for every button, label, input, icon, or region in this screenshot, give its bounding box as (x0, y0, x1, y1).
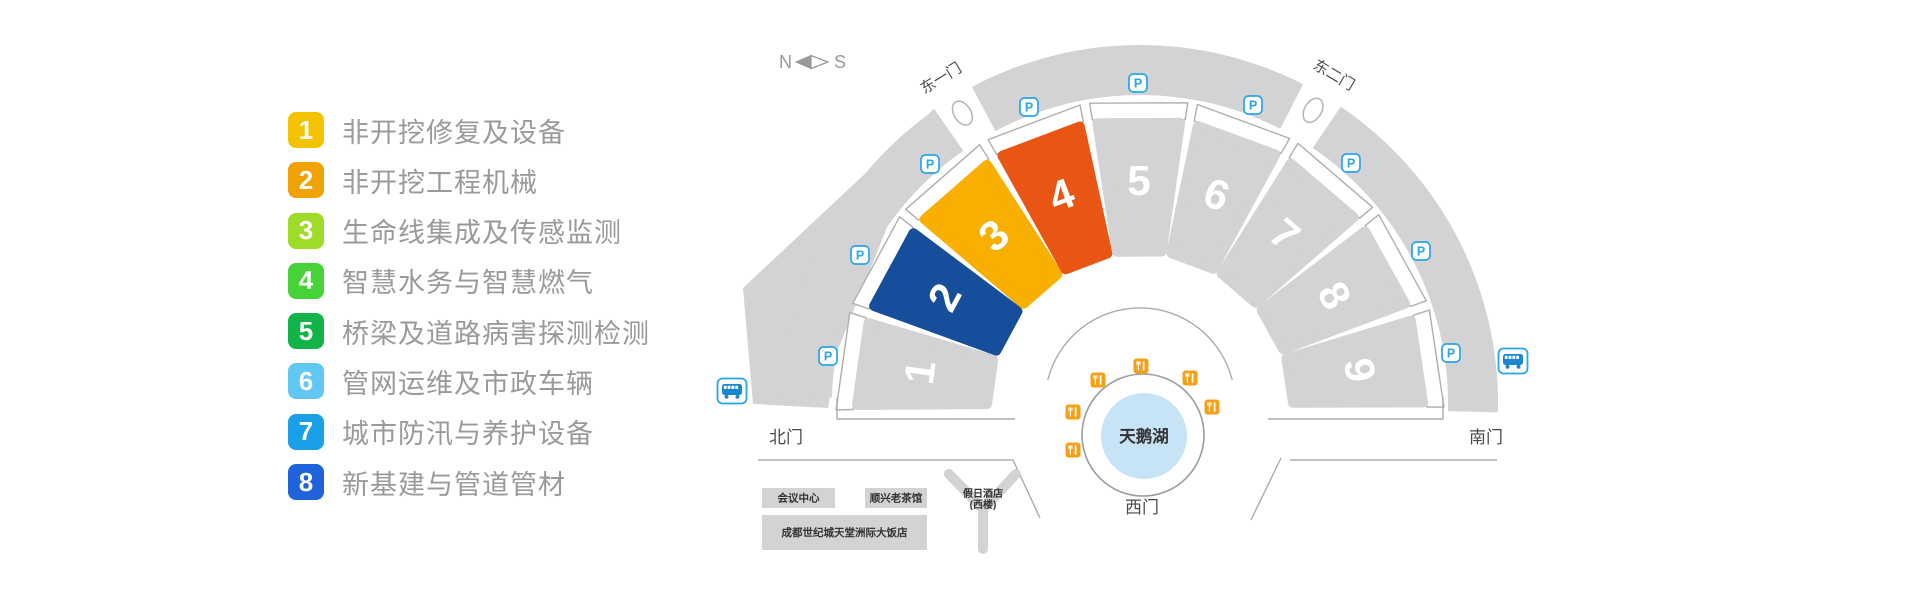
svg-text:P: P (824, 350, 832, 364)
compass-north-label: N (779, 52, 792, 72)
parking-icon: P (921, 155, 939, 173)
svg-text:P: P (1447, 347, 1455, 361)
restaurant-icon (1205, 400, 1220, 415)
compass-east-half (811, 56, 828, 69)
restaurant-icon (1183, 371, 1198, 386)
svg-text:P: P (1249, 99, 1257, 113)
west-road-line-left (1013, 460, 1040, 518)
parking-icon: P (1412, 242, 1430, 260)
svg-text:P: P (1347, 157, 1355, 171)
parking-icon: P (1129, 74, 1147, 92)
west-gate-label: 西门 (1125, 498, 1159, 517)
building-2-label: 成都世纪城天堂洲际大饭店 (782, 526, 908, 539)
compass-west-half (796, 56, 811, 69)
restaurant-icon (1091, 373, 1106, 388)
site-map: 东一门东二门123456789天鹅湖假日酒店(西楼)会议中心顺兴老茶馆成都世纪城… (0, 0, 1920, 598)
svg-text:P: P (1417, 245, 1425, 259)
east-gate-1-opening (948, 98, 976, 129)
north-gate-label: 北门 (769, 428, 803, 447)
restaurant-icon (1066, 405, 1081, 420)
building-1-label: 顺兴老茶馆 (870, 492, 923, 505)
svg-text:P: P (1025, 101, 1033, 115)
holiday-inn-label-line2: (西楼) (970, 498, 997, 511)
west-road-line-right (1251, 458, 1281, 520)
swan-lake-label: 天鹅湖 (1119, 426, 1169, 446)
bus-stop-icon (1499, 349, 1528, 374)
svg-text:P: P (1134, 77, 1142, 91)
compass-south-label: S (834, 52, 846, 72)
parking-icon: P (1020, 98, 1038, 116)
bus-stop-icon (718, 379, 747, 404)
south-gate-label: 南门 (1469, 428, 1503, 447)
parking-icon: P (851, 246, 869, 264)
parking-icon: P (1244, 96, 1262, 114)
east-gate-2-label: 东二门 (1310, 57, 1357, 95)
hotel-drive (949, 474, 1016, 549)
svg-text:P: P (856, 249, 864, 263)
restaurant-icon (1134, 359, 1149, 374)
restaurant-icon (1066, 443, 1081, 458)
compass: NS (779, 52, 846, 72)
site-map-container: 东一门东二门123456789天鹅湖假日酒店(西楼)会议中心顺兴老茶馆成都世纪城… (0, 0, 1920, 598)
parking-icon: P (819, 347, 837, 365)
east-gate-2-opening (1299, 95, 1327, 126)
parking-icon: P (1442, 344, 1460, 362)
holiday-inn-label-line1: 假日酒店 (963, 487, 1003, 500)
hall-5-number: 5 (1127, 157, 1151, 204)
east-gate-1-label: 东一门 (918, 60, 965, 98)
parking-icon: P (1342, 154, 1360, 172)
svg-text:P: P (926, 158, 934, 172)
hall-5-lobby (1090, 103, 1188, 120)
building-0-label: 会议中心 (778, 492, 820, 505)
venue-map-page: 1非开挖修复及设备2非开挖工程机械3生命线集成及传感监测4智慧水务与智慧燃气5桥… (0, 0, 1920, 598)
